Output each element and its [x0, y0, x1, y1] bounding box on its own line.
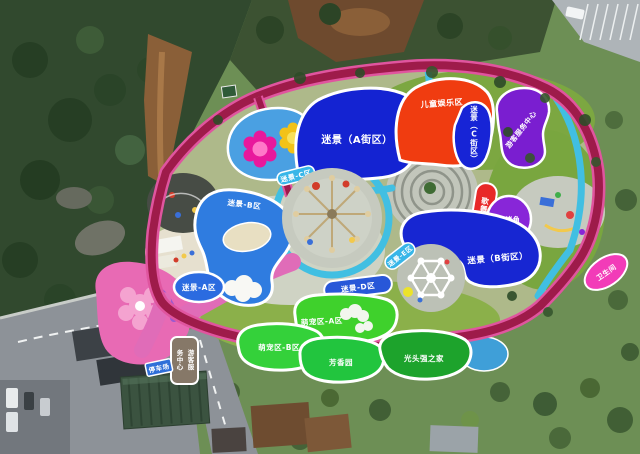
kiosk — [221, 85, 236, 98]
tree — [424, 182, 436, 194]
zone-maze-street-a-label: 迷景（A街区） — [320, 133, 392, 146]
parked-car — [6, 388, 18, 408]
zone-logger-vick-home-label: 光头强之家 — [403, 353, 444, 363]
park-aerial-map: 迷景（A街区） 儿童娱乐区 迷景（C街区） 游客服务中心 歌舞演出区 烧烤角 迷… — [0, 0, 640, 454]
rope-climbing-plaza — [282, 168, 382, 268]
zone-maze-a: 迷景-A区 — [174, 272, 224, 302]
zone-maze-a-label: 迷景-A区 — [181, 282, 216, 292]
yellow-dot — [403, 287, 413, 297]
parked-car — [40, 398, 50, 416]
zone-fragrance-garden-label: 芳香园 — [329, 357, 353, 367]
zone-pets-b-label: 萌宠区-B区 — [258, 342, 300, 352]
brown-building — [251, 402, 312, 448]
parked-car — [6, 412, 18, 432]
parked-car — [24, 392, 34, 410]
zone-logger-vick-home: 光头强之家 — [380, 331, 471, 380]
zone-maze-street-c-label: 迷景（C街区） — [469, 104, 478, 163]
brown-building — [304, 414, 351, 452]
zone-fragrance-garden: 芳香园 — [300, 337, 384, 382]
shed — [211, 427, 246, 453]
visitor-service-sign-col1: 游客服 — [186, 348, 195, 371]
visitor-service-sign-col2: 务中心 — [175, 348, 183, 371]
grey-building — [430, 425, 479, 453]
visitor-service-sign: 游客服 务中心 — [171, 337, 198, 384]
